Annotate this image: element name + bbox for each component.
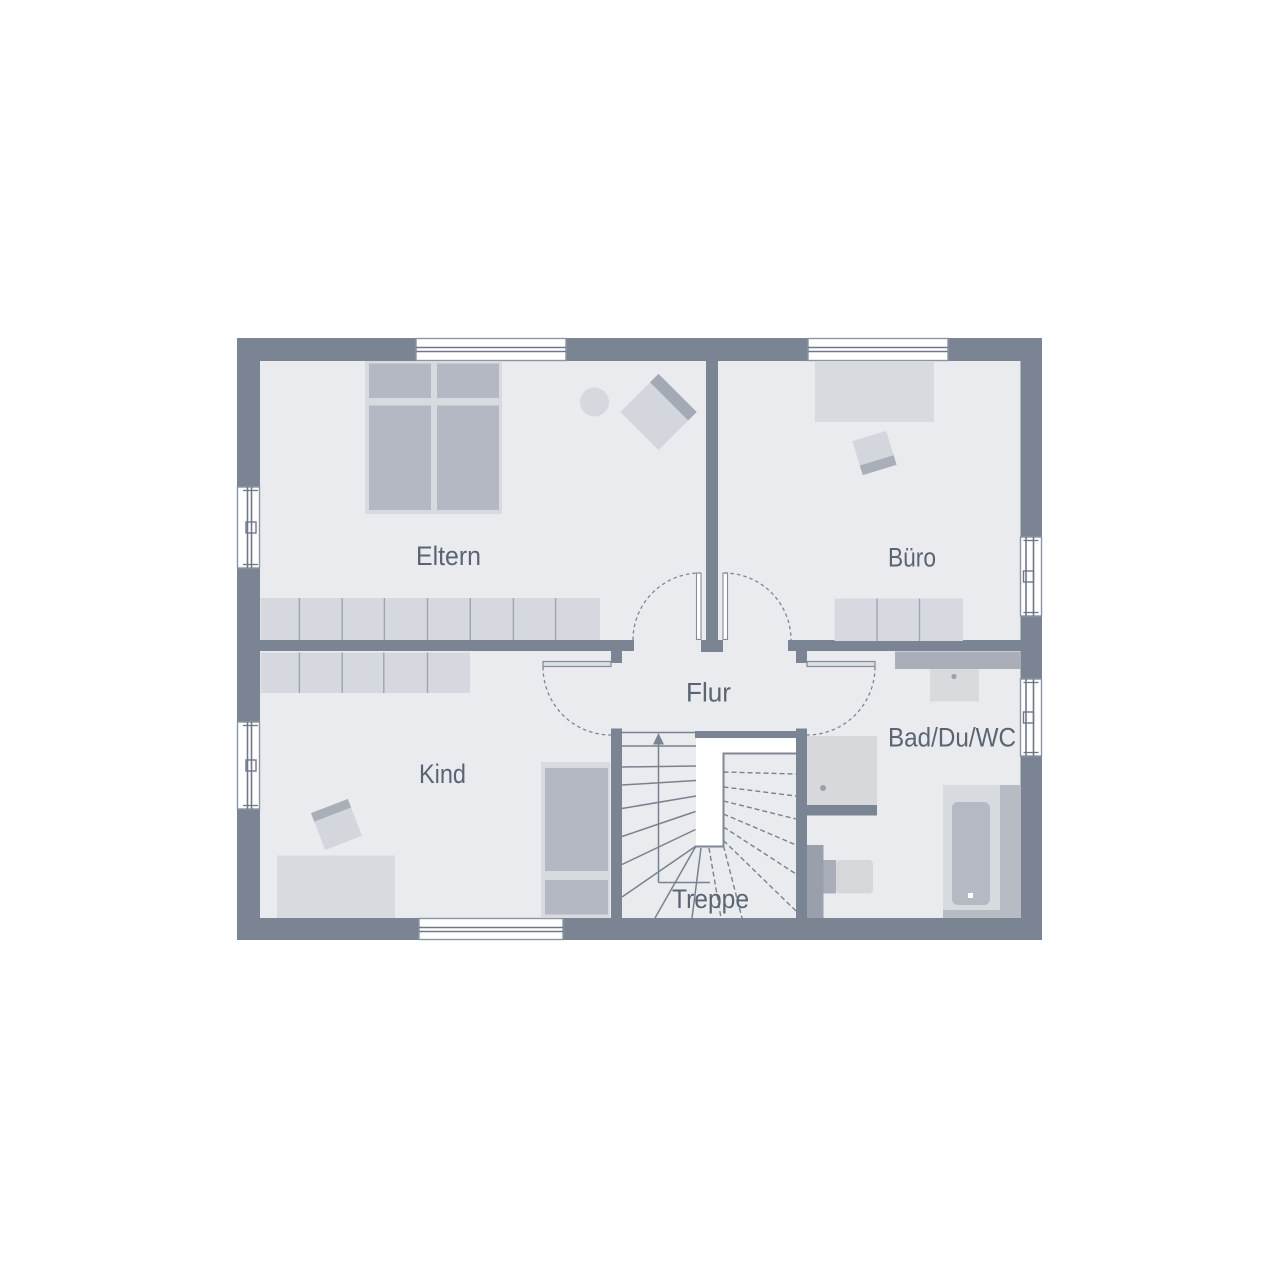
svg-text:Flur: Flur — [686, 678, 731, 708]
svg-text:Bad/Du/WC: Bad/Du/WC — [888, 723, 1016, 753]
svg-text:Büro: Büro — [888, 543, 936, 573]
svg-text:Eltern: Eltern — [416, 541, 481, 571]
svg-text:Treppe: Treppe — [672, 884, 749, 914]
svg-text:Kind: Kind — [419, 759, 466, 789]
